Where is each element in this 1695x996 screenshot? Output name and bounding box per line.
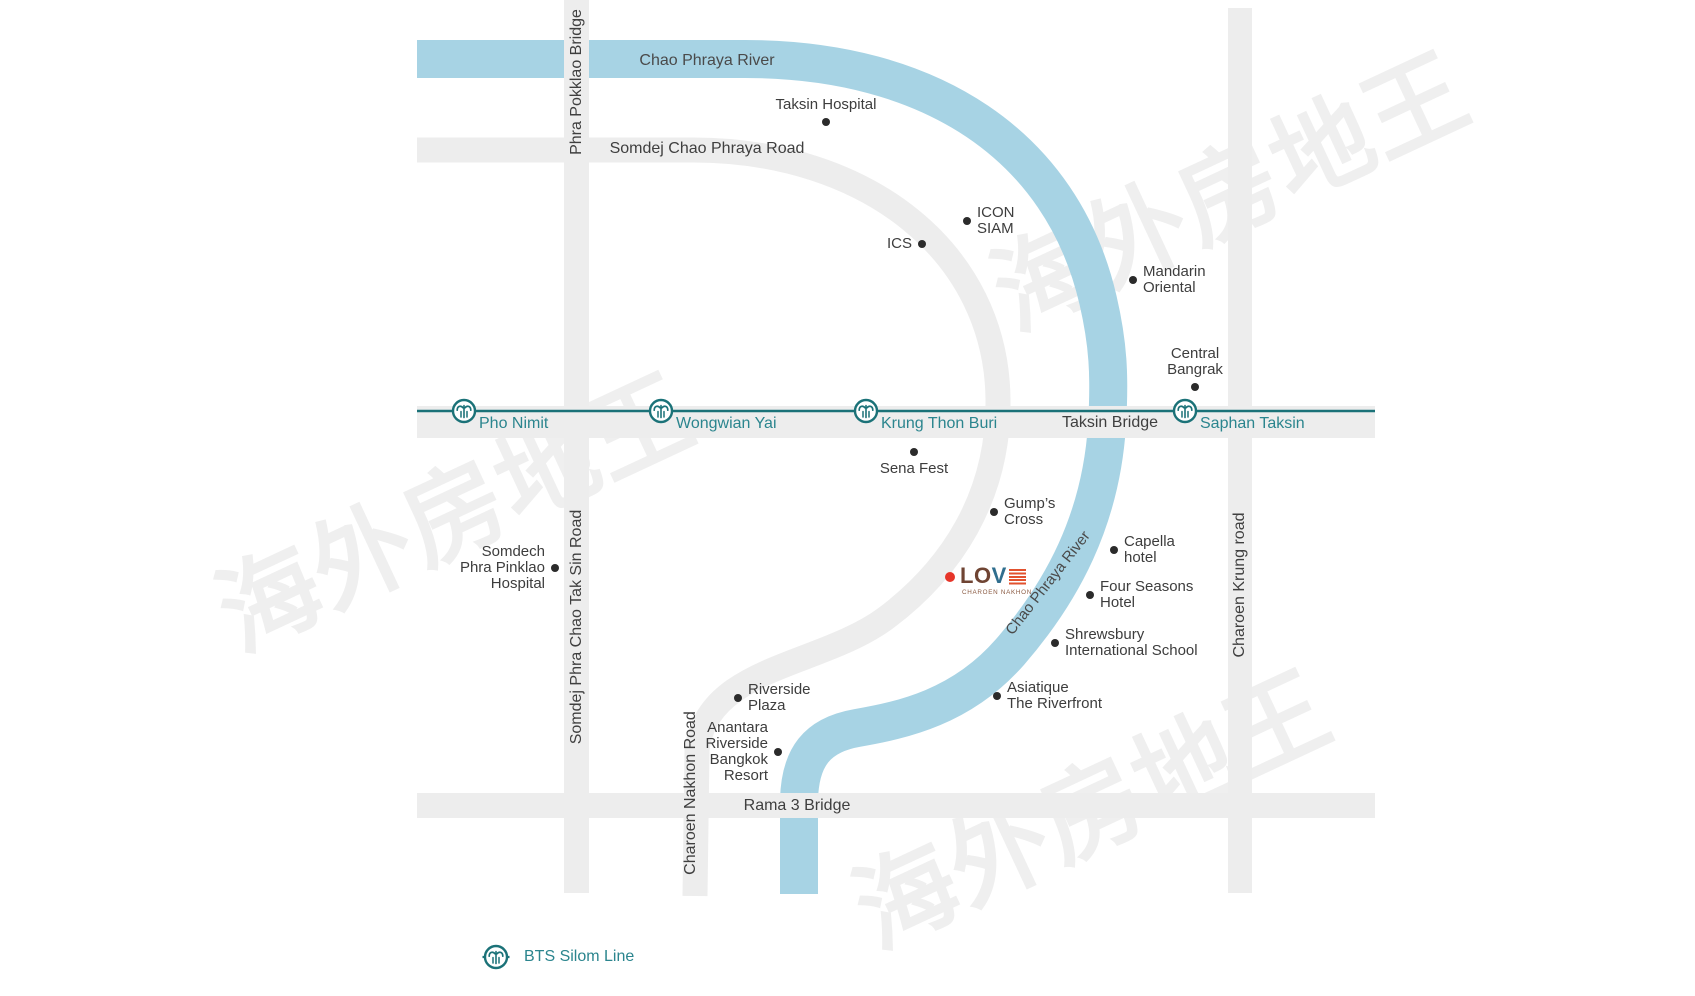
map-labels: Chao Phraya River Chao Phraya River Phra… <box>0 0 1695 996</box>
landmark-dot <box>990 508 999 517</box>
landmark-label: Gump’s Cross <box>1004 496 1055 528</box>
landmark-dot <box>774 748 783 757</box>
property-subtitle: CHAROEN NAKHON <box>962 589 1032 596</box>
landmark-label: Capella hotel <box>1124 534 1175 566</box>
landmark-label: Sena Fest <box>880 461 948 477</box>
bts-station-label: Wongwian Yai <box>676 415 777 433</box>
landmark-dot <box>822 118 831 127</box>
landmark-dot <box>910 448 919 457</box>
landmark-dot <box>1110 546 1119 555</box>
landmark-dot <box>1129 276 1138 285</box>
landmark-dot <box>963 217 972 226</box>
road-label-charoen-nakhon: Charoen Nakhon Road <box>682 711 700 875</box>
landmark-dot <box>551 564 560 573</box>
road-label-somdej-phra-chao-tak-sin: Somdej Phra Chao Tak Sin Road <box>568 510 586 745</box>
bts-station-label: Saphan Taksin <box>1200 415 1305 433</box>
bridge-label-rama3: Rama 3 Bridge <box>744 797 851 815</box>
landmark-label: Central Bangrak <box>1167 346 1223 378</box>
bangkok-transit-map: 海外房地王 海外房地王 海外房地王 <box>0 0 1695 996</box>
bts-station-label: Pho Nimit <box>479 415 548 433</box>
landmark-label: Asiatique The Riverfront <box>1007 680 1102 712</box>
property-logo-letters: LOV <box>960 565 1007 588</box>
legend-bts-silom-line-label: BTS Silom Line <box>524 948 634 966</box>
landmark-dot <box>1086 591 1095 600</box>
landmark-dot <box>1191 383 1200 392</box>
road-label-somdej-chao-phraya: Somdej Chao Phraya Road <box>610 140 805 158</box>
landmark-dot <box>734 694 743 703</box>
bts-station-label: Krung Thon Buri <box>881 415 997 433</box>
landmark-label: Riverside Plaza <box>748 682 811 714</box>
road-label-charoen-krung: Charoen Krung road <box>1231 513 1249 658</box>
landmark-label: Anantara Riverside Bangkok Resort <box>705 720 768 784</box>
property-logo: LOV CHAROEN NAKHON <box>960 565 1032 596</box>
property-letter: V <box>992 563 1007 588</box>
property-letter: L <box>960 563 974 588</box>
landmark-label: Mandarin Oriental <box>1143 264 1206 296</box>
landmark-label: Somdech Phra Pinklao Hospital <box>460 544 545 592</box>
landmark-label: Taksin Hospital <box>776 97 877 113</box>
landmark-label: Shrewsbury International School <box>1065 627 1198 659</box>
bridge-label-taksin: Taksin Bridge <box>1062 414 1158 432</box>
property-letter: O <box>974 563 992 588</box>
landmark-dot <box>993 692 1002 701</box>
property-logo-stripes-icon <box>1009 569 1026 585</box>
landmark-dot <box>1051 639 1060 648</box>
river-label-top: Chao Phraya River <box>639 52 774 70</box>
landmark-label: ICS <box>887 236 912 252</box>
landmark-label: ICON SIAM <box>977 205 1015 237</box>
landmark-label: Four Seasons Hotel <box>1100 579 1193 611</box>
property-dot <box>945 572 955 582</box>
road-label-phra-pokklao-bridge: Phra Pokklao Bridge <box>568 9 586 155</box>
landmark-dot <box>918 240 927 249</box>
legend-bts-station-icon <box>482 943 510 971</box>
